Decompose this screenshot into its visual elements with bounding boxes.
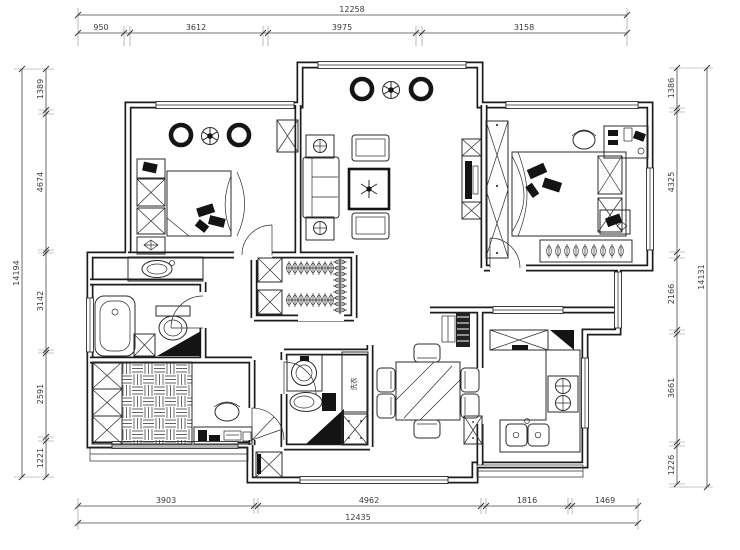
- door-opening: [198, 292, 208, 328]
- window: [506, 102, 638, 109]
- dining-chair: [377, 368, 395, 392]
- parquet-floor: [122, 362, 192, 444]
- ceiling-light-icon: [229, 125, 249, 145]
- dim-bottom-overall: 12435: [345, 513, 370, 522]
- appliance-label: 洗衣: [349, 377, 358, 391]
- window: [493, 307, 563, 314]
- dim-bottom-seg-4: 1469: [595, 496, 615, 505]
- duct-shaft: [256, 452, 282, 477]
- nightstand: [137, 159, 165, 178]
- side-table: [306, 135, 334, 158]
- window: [156, 102, 294, 109]
- door-opening: [490, 263, 526, 273]
- bed: [137, 171, 245, 236]
- window: [300, 477, 448, 484]
- dim-top-seg-3: 3975: [332, 23, 352, 32]
- dim-right-overall: 14131: [697, 264, 706, 289]
- room-bedroom-right: [486, 121, 648, 262]
- bathroom-main: [95, 296, 201, 356]
- entry: [256, 452, 282, 477]
- kitchen-sink: [506, 419, 549, 446]
- dining-chair: [377, 394, 395, 418]
- window: [582, 358, 589, 428]
- dim-left-seg-5: 1221: [36, 448, 45, 468]
- dim-top-overall: 12258: [339, 5, 364, 14]
- dining-chair: [414, 344, 440, 362]
- shower-stall: [342, 414, 368, 445]
- wash-basin: [142, 261, 172, 278]
- dim-right-seg-2: 4325: [667, 172, 676, 192]
- fridge: [456, 312, 470, 347]
- desk-chair: [214, 402, 240, 421]
- dim-bottom-seg-1: 3903: [156, 496, 176, 505]
- tv-unit: [462, 139, 481, 219]
- bathtub: [95, 296, 135, 356]
- dim-right-seg-3: 2166: [667, 284, 676, 304]
- dim-left-seg-3: 3142: [36, 291, 45, 311]
- shower-slope-icon: [157, 331, 201, 356]
- door-opening: [298, 311, 344, 321]
- dim-right-seg-5: 1226: [667, 455, 676, 475]
- tv-icon: [465, 161, 472, 199]
- ceiling-light-icon: [352, 79, 372, 99]
- stove: [548, 376, 578, 412]
- dim-left-seg-2: 4674: [36, 172, 45, 192]
- armchair: [352, 135, 389, 161]
- laundry-cabinet: 洗衣: [342, 352, 368, 412]
- wardrobe: [486, 121, 508, 258]
- dim-top-seg-2: 3612: [186, 23, 206, 32]
- window: [647, 168, 654, 250]
- dim-left-overall: 14194: [12, 260, 21, 285]
- dim-left-seg-1: 1389: [36, 79, 45, 99]
- corner-shelf-icon: [550, 330, 574, 350]
- floor-drain: [134, 334, 155, 356]
- dim-bottom-seg-2: 4962: [359, 496, 379, 505]
- dining-chair: [414, 420, 440, 438]
- closet-hanger-rail: [540, 240, 632, 262]
- ceiling-light-icon: [171, 125, 191, 145]
- faucet-icon: [170, 261, 175, 266]
- hallway-wash-area: [128, 257, 203, 281]
- ceiling-light-icon: [411, 79, 431, 99]
- window: [615, 272, 622, 328]
- faucet-icon: [525, 419, 530, 424]
- nightstand: [137, 237, 165, 254]
- toilet: [156, 306, 190, 340]
- desk-chair: [572, 130, 596, 149]
- dining-table: [396, 362, 460, 420]
- dim-top-seg-1: 950: [93, 23, 108, 32]
- window: [87, 298, 94, 352]
- dim-bottom-seg-3: 1816: [517, 496, 537, 505]
- wash-counter: [128, 257, 203, 281]
- ceiling-fan-icon: [383, 82, 400, 99]
- dim-right-seg-1: 1386: [667, 78, 676, 98]
- dim-left-seg-4: 2591: [36, 384, 45, 404]
- toilet: [290, 393, 336, 412]
- dim-right-seg-4: 3661: [667, 378, 676, 398]
- wardrobe: [92, 362, 122, 444]
- walk-in-closet: [258, 258, 347, 314]
- ceiling-fan-icon: [202, 128, 219, 145]
- shower-slope-icon: [306, 409, 344, 444]
- armchair: [352, 213, 389, 239]
- room-living: [303, 79, 481, 240]
- sideboard: [442, 316, 455, 342]
- side-table: [306, 217, 334, 240]
- coffee-table: [349, 169, 389, 209]
- wall-cabinet: [490, 330, 548, 350]
- window: [318, 62, 466, 69]
- washbasin: [287, 355, 322, 391]
- dim-top-seg-4: 3158: [514, 23, 534, 32]
- room-study: [92, 362, 252, 444]
- room-bedroom-left: [137, 120, 298, 254]
- sofa: [303, 157, 339, 218]
- floor-plan: 12258 950 3612 3975 3158 14194 1389 4674…: [0, 0, 740, 550]
